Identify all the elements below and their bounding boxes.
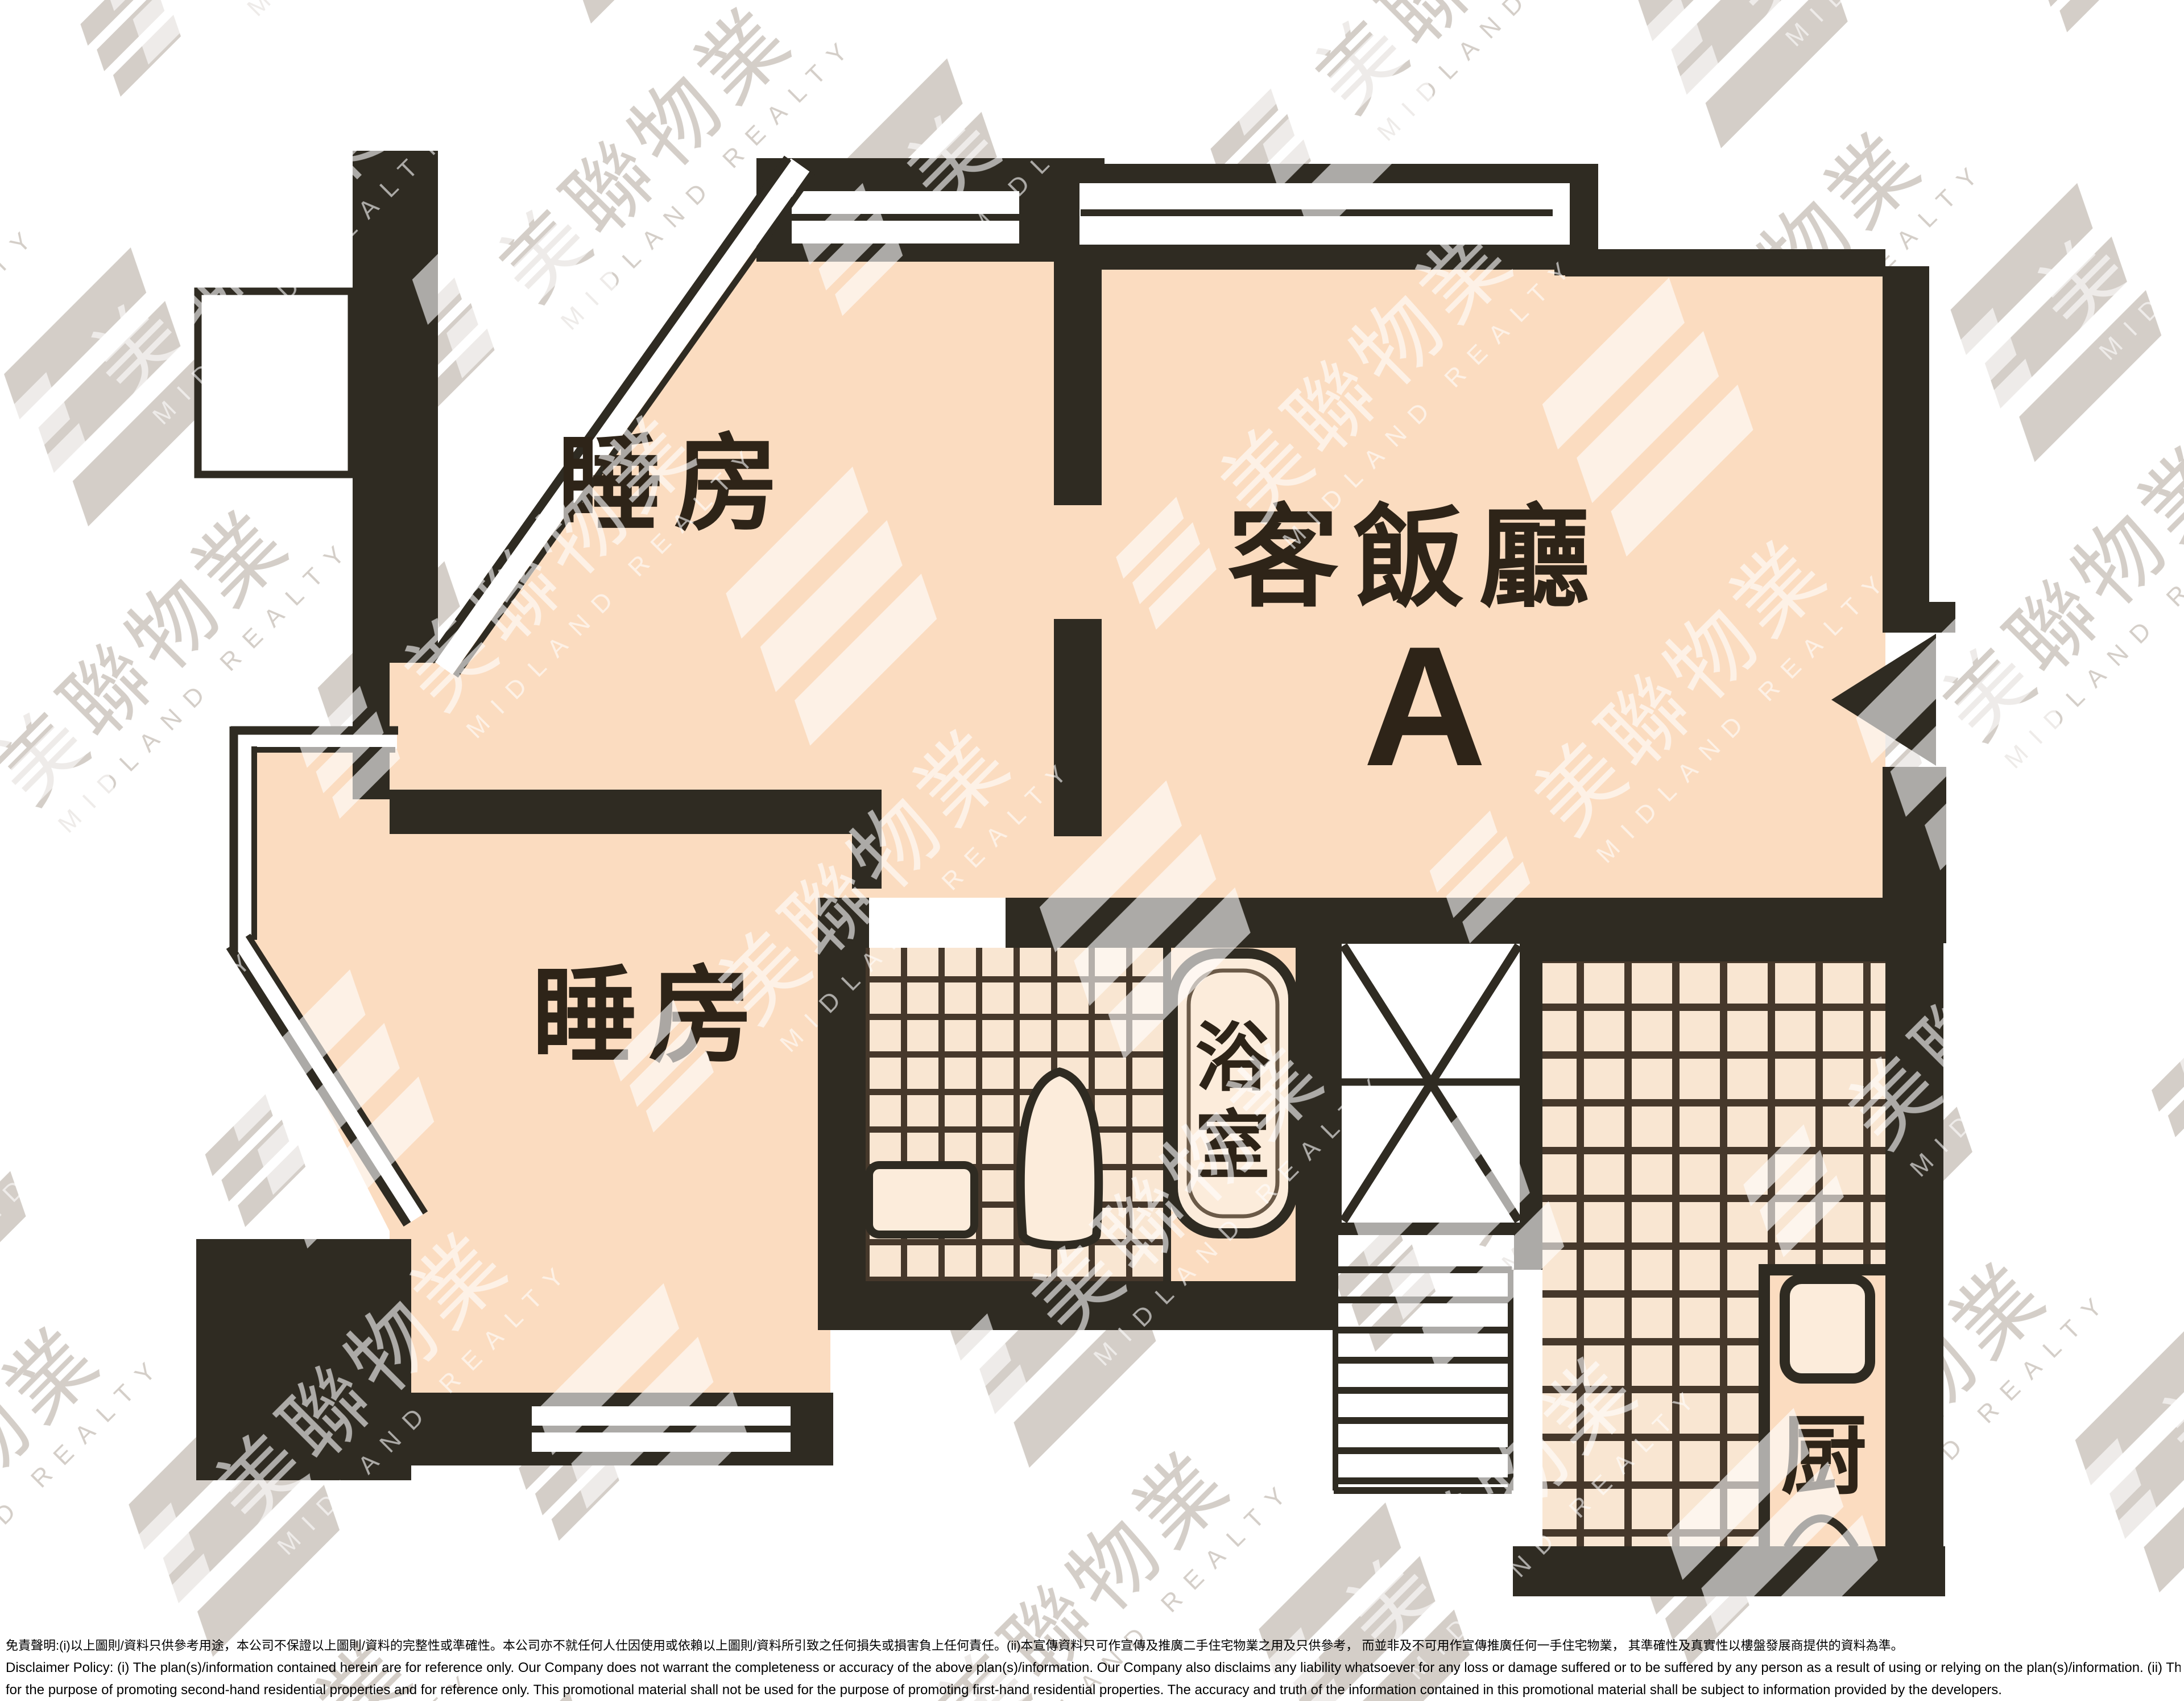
screenshot-stage: 美聯物業 MIDLAND REALTY [0, 0, 2184, 1701]
disclaimer: 免責聲明:(i)以上圖則/資料只供參考用途，本公司不保證以上圖則/資料的完整性或… [6, 1635, 2181, 1701]
disclaimer-zh: 免責聲明:(i)以上圖則/資料只供參考用途，本公司不保證以上圖則/資料的完整性或… [6, 1635, 2181, 1657]
floor-plan: 美聯物業 MIDLAND REALTY [0, 0, 2184, 1701]
watermark-layer-white [0, 0, 2184, 1701]
disclaimer-en-line1: Disclaimer Policy: (i) The plan(s)/infor… [6, 1657, 2181, 1679]
disclaimer-en-line2: for the purpose of promoting second-hand… [6, 1679, 2181, 1701]
